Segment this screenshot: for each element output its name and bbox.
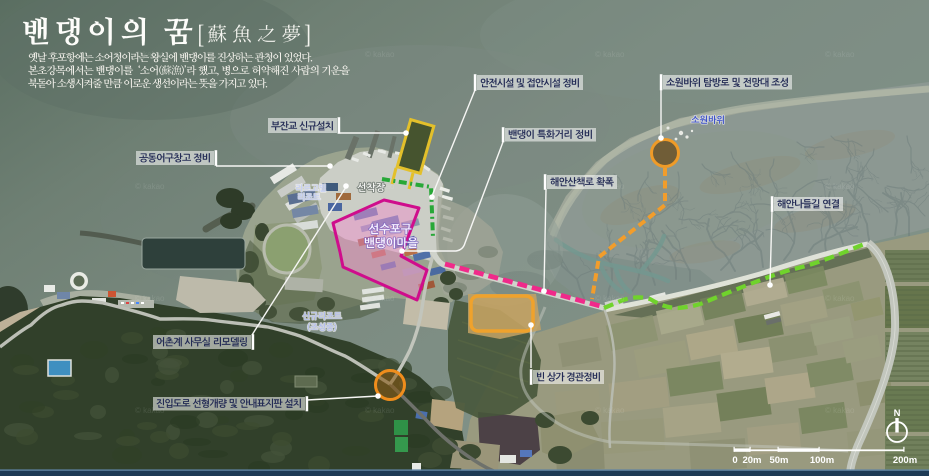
svg-text:© kakao: © kakao [595, 50, 625, 59]
svg-text:© kakao: © kakao [135, 182, 165, 191]
svg-text:© kakao: © kakao [825, 50, 855, 59]
svg-text:© kakao: © kakao [825, 294, 855, 303]
svg-text:© kakao: © kakao [365, 294, 395, 303]
svg-text:200m: 200m [893, 455, 917, 466]
svg-text:© kakao: © kakao [595, 294, 625, 303]
svg-text:© kakao: © kakao [365, 50, 395, 59]
svg-text:20m: 20m [742, 455, 761, 466]
svg-text:© kakao: © kakao [825, 406, 855, 415]
svg-text:© kakao: © kakao [595, 182, 625, 191]
svg-text:© kakao: © kakao [135, 406, 165, 415]
svg-text:© kakao: © kakao [135, 294, 165, 303]
svg-text:© kakao: © kakao [365, 406, 395, 415]
svg-text:© kakao: © kakao [365, 182, 395, 191]
svg-text:50m: 50m [769, 455, 788, 466]
svg-text:100m: 100m [810, 455, 834, 466]
svg-text:© kakao: © kakao [825, 182, 855, 191]
svg-text:© kakao: © kakao [595, 406, 625, 415]
svg-text:N: N [894, 408, 901, 419]
svg-text:0: 0 [732, 455, 737, 466]
svg-text:© kakao: © kakao [135, 50, 165, 59]
